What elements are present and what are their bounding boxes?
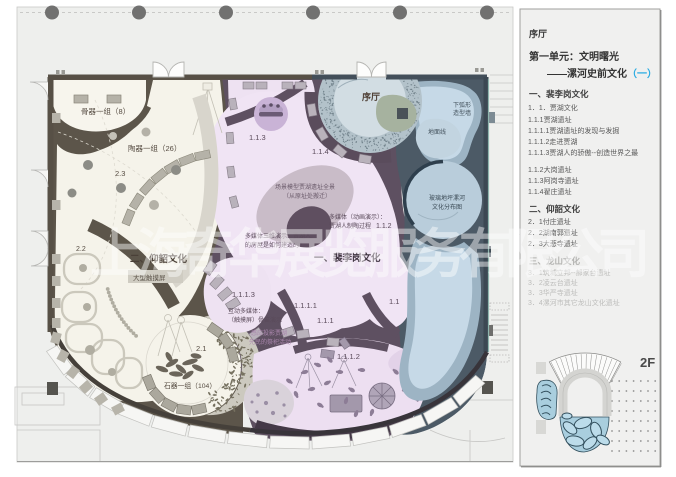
svg-text:1.1.3: 1.1.3: [249, 133, 266, 142]
svg-text:石器一组（104）: 石器一组（104）: [164, 381, 216, 390]
svg-text:1.1.1.1: 1.1.1.1: [294, 301, 317, 310]
svg-text:造型墙: 造型墙: [453, 109, 471, 117]
svg-text:3．4漯河市其它龙山文化遗址: 3．4漯河市其它龙山文化遗址: [528, 298, 620, 307]
svg-text:文化分布图: 文化分布图: [432, 203, 462, 211]
svg-text:场景模型贾湖遗址全景: 场景模型贾湖遗址全景: [275, 183, 335, 191]
svg-text:1.1: 1.1: [389, 297, 399, 306]
svg-text:地面线: 地面线: [428, 128, 446, 136]
svg-text:1.1.4: 1.1.4: [312, 147, 329, 156]
svg-text:1.1.1贾湖遗址: 1.1.1贾湖遗址: [528, 115, 572, 124]
svg-text:序厅: 序厅: [362, 91, 380, 102]
svg-text:2F: 2F: [640, 355, 655, 370]
svg-text:1.1.4翟庄遗址: 1.1.4翟庄遗址: [528, 187, 572, 196]
svg-text:——漯河史前文化（一）: ——漯河史前文化（一）: [547, 67, 657, 80]
svg-text:1.1.1.1贾湖遗址的发现与发掘: 1.1.1.1贾湖遗址的发现与发掘: [528, 126, 619, 135]
svg-text:1.1.2大岗遗址: 1.1.2大岗遗址: [528, 165, 572, 174]
svg-text:1.1.1.2: 1.1.1.2: [337, 352, 360, 361]
svg-text:一、裴李岗文化: 一、裴李岗文化: [529, 89, 589, 99]
svg-text:二、仰韶文化: 二、仰韶文化: [529, 204, 581, 214]
svg-text:（触摸屏）骨笛演示: （触摸屏）骨笛演示: [228, 316, 282, 324]
svg-text:第一单元：文明曙光: 第一单元：文明曙光: [529, 50, 619, 63]
svg-text:下弧形: 下弧形: [453, 101, 471, 109]
svg-text:上海奇华展览服务有限公司: 上海奇华展览服务有限公司: [90, 225, 650, 284]
svg-text:（从原址处搬迁）: （从原址处搬迁）: [283, 192, 331, 200]
svg-text:1.1.1.3贾湖人的骄傲--创造世界之最: 1.1.1.3贾湖人的骄傲--创造世界之最: [528, 148, 638, 157]
svg-text:骨器一组（8）: 骨器一组（8）: [81, 106, 130, 116]
svg-text:1.1.1: 1.1.1: [317, 316, 334, 325]
svg-text:感应投影贾湖: 感应投影贾湖: [251, 329, 287, 337]
svg-text:2.3: 2.3: [115, 169, 125, 178]
svg-text:序厅: 序厅: [529, 28, 547, 39]
svg-text:先民的祭祀活动: 先民的祭祀活动: [249, 338, 291, 346]
svg-text:2.2: 2.2: [76, 246, 86, 253]
svg-text:陶器一组（26）: 陶器一组（26）: [128, 143, 181, 153]
svg-text:1．1．贾湖文化: 1．1．贾湖文化: [528, 103, 578, 112]
svg-text:2.1: 2.1: [196, 344, 206, 353]
svg-text:1.1.1.3: 1.1.1.3: [232, 290, 255, 299]
svg-text:1.1.3阿岗寺遗址: 1.1.3阿岗寺遗址: [528, 176, 579, 185]
svg-text:互动多媒体：: 互动多媒体：: [228, 307, 264, 315]
svg-text:1.1.1.2走进贾湖: 1.1.1.2走进贾湖: [528, 137, 577, 146]
svg-text:玻璃地坪漯河: 玻璃地坪漯河: [429, 194, 465, 202]
svg-text:3．3华严寺遗址: 3．3华严寺遗址: [528, 288, 578, 297]
svg-text:多媒体（动画演示）：: 多媒体（动画演示）：: [329, 213, 386, 221]
